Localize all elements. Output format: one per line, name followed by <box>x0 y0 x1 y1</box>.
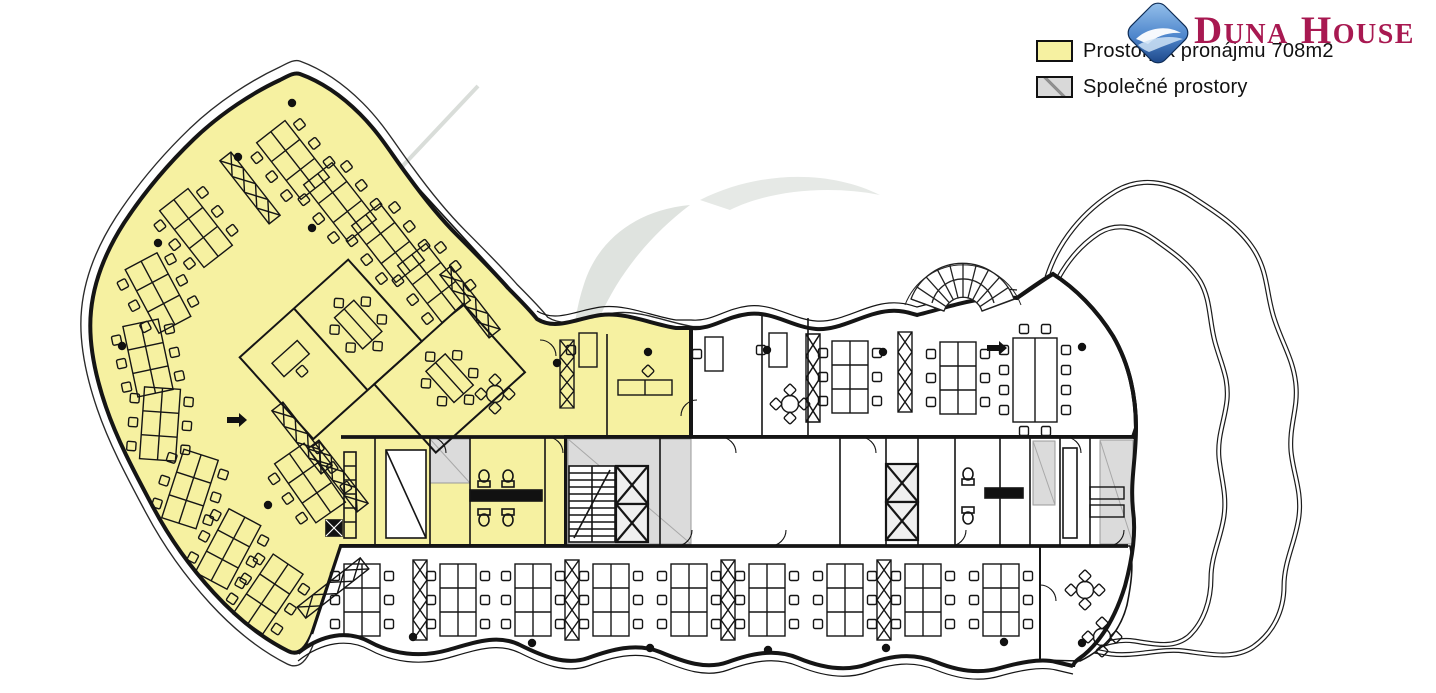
brand-wordmark: DUNAHOUSE <box>1194 8 1415 53</box>
brand-diamond-icon <box>1118 0 1198 72</box>
brand-logo: DUNAHOUSE <box>1118 0 1418 70</box>
legend-label-common: Společné prostory <box>1083 76 1248 99</box>
legend-swatch-common <box>1036 76 1073 98</box>
legend-swatch-rentable <box>1036 40 1073 62</box>
floor-plan-page: Prostory k pronájmu 708m2 Společné prost… <box>0 0 1436 693</box>
legend-item-common: Společné prostory <box>1036 76 1334 98</box>
